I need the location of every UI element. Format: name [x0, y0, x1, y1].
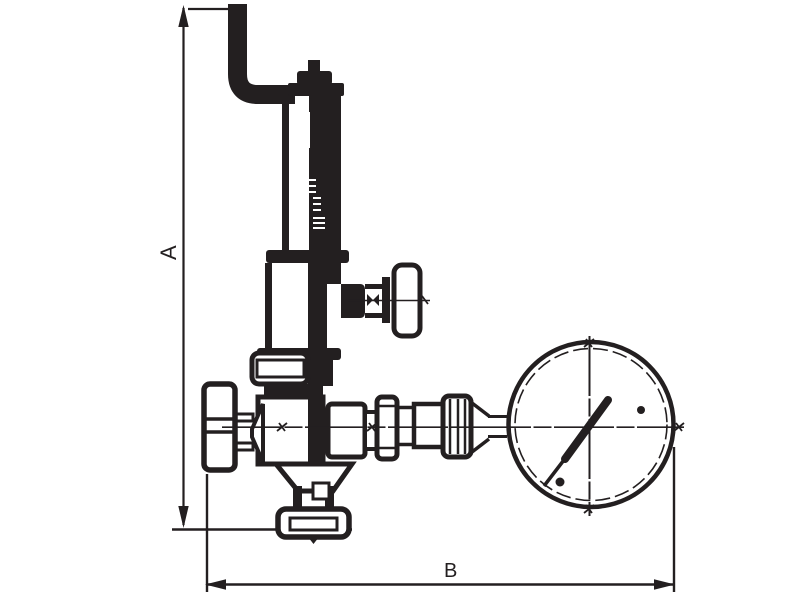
svg-text:A: A [156, 245, 181, 260]
svg-text:B: B [444, 560, 457, 582]
